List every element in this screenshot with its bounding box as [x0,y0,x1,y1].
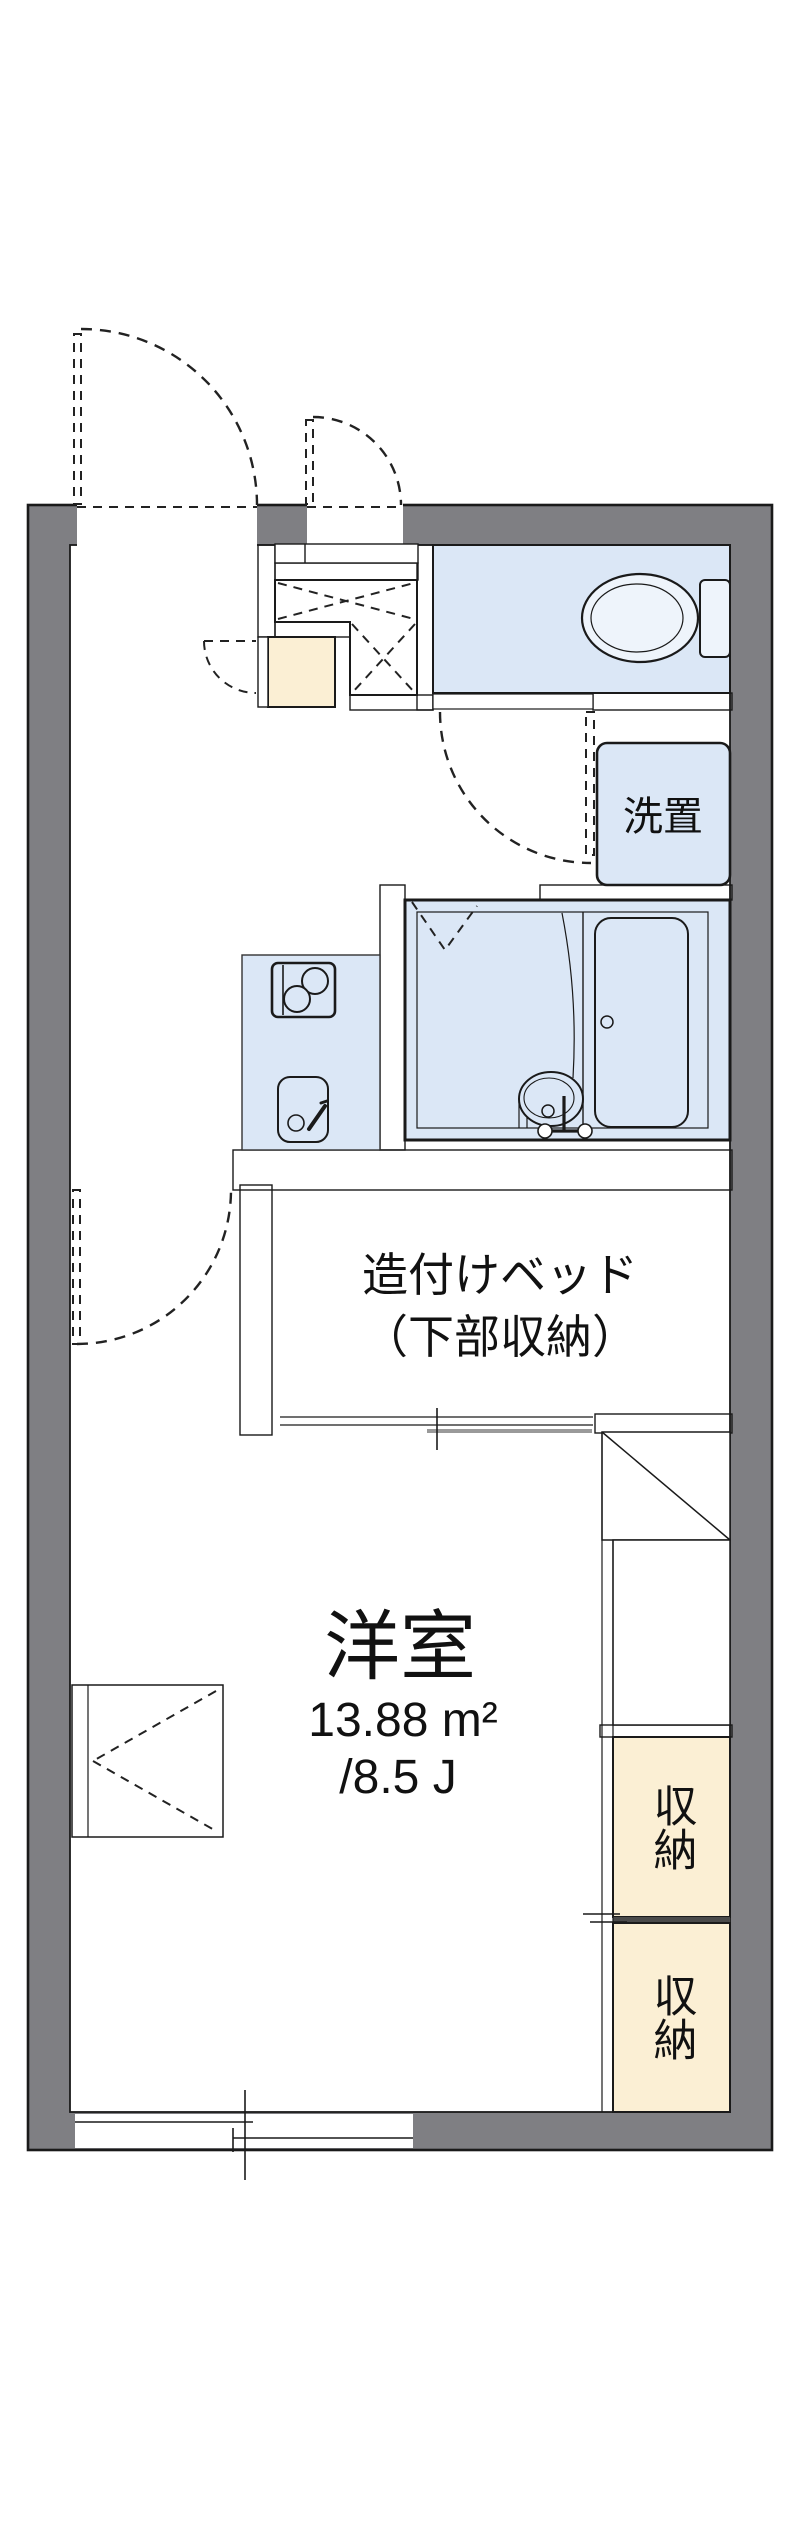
main-room-area-m2: 13.88 m² [308,1694,497,1747]
entrance-door-leaf [74,334,81,504]
storage-opening [307,502,403,546]
bed-label-line2: （下部収納） [362,1311,638,1363]
storage-door-arc [313,417,401,505]
outer-wall-right [730,505,772,2150]
outer-wall-left [28,505,70,2150]
entrance-door-swing [74,329,257,505]
toilet-door-opening [433,694,593,709]
shoe-cabinet [268,637,335,707]
side-window [72,1685,223,1837]
entrance-door-arc [81,329,257,505]
floor-plan: 洗置 [0,0,800,2541]
storage-door-leaf [306,420,313,504]
bathroom [405,886,730,1140]
entrance-opening [77,502,257,580]
storage-b-label: 収納 [647,1973,697,2061]
open-shelf-space [613,1540,730,1725]
storage-door-swing [306,417,401,505]
toilet-icon [582,574,730,662]
main-room-name: 洋室 [324,1605,476,1690]
shoe-cabinet-door [258,637,268,707]
laundry-label: 洗置 [623,795,703,839]
toilet-room [433,545,730,709]
bathroom-door-opening [407,886,538,900]
bed-label-line1: 造付けベッド [362,1249,638,1301]
kitchen-counter [242,955,380,1150]
main-room-area-tatami: /8.5 J [339,1751,456,1804]
storage-a-label: 収納 [647,1783,697,1871]
storage-door-recess [275,544,418,563]
laundry-box: 洗置 [597,743,730,885]
bathtub-icon [595,918,688,1127]
